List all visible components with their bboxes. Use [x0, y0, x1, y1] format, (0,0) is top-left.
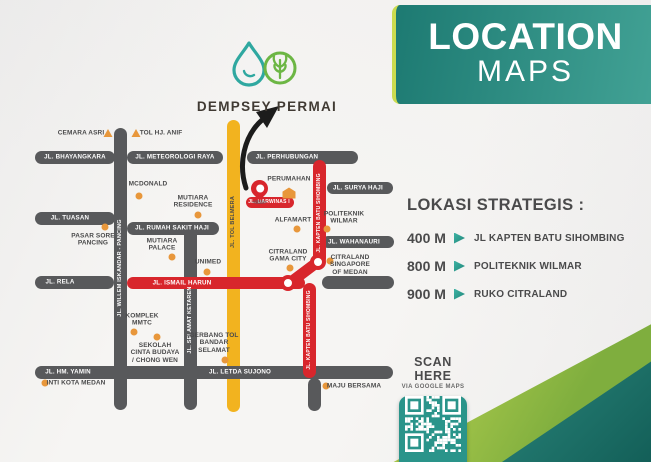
road-label: JL. METEOROLOGI RAYA	[135, 154, 214, 161]
house-icon	[283, 188, 296, 199]
poi-triangle-icon	[104, 129, 113, 137]
road-label: JL. KAPTEN BATU SIHOMBING	[306, 290, 312, 369]
scan-title: SCAN HERE	[399, 355, 467, 383]
place-label: RUKO CITRALAND	[474, 289, 567, 300]
place-label: JL KAPTEN BATU SIHOMBING	[474, 233, 625, 244]
header-title-line1: LOCATION	[396, 18, 651, 55]
scan-section: SCAN HERE VIA GOOGLE MAPS	[399, 355, 467, 462]
road-label: JL. ISMAIL HARUN	[153, 280, 212, 287]
road-label: JL. WILLEM ISKANDAR - PANCING	[117, 219, 123, 316]
road-label: JL. BHAYANGKARA	[44, 154, 106, 161]
place-label: POLITEKNIK WILMAR	[474, 261, 582, 272]
road-label: JL. RUMAH SAKIT HAJI	[135, 225, 209, 232]
poi-sekolah-cinta-budaya: SEKOLAHCINTA BUDAYA/ CHONG WEN	[131, 342, 180, 364]
poi-dot-icon	[154, 334, 161, 341]
poi-citraland-singapore-of-medan: CITRALANDSINGAPOREOF MEDAN	[330, 254, 370, 276]
strategic-row-900m: 900 M RUKO CITRALAND	[407, 286, 567, 302]
strategic-heading: LOKASI STRATEGIS :	[407, 196, 647, 215]
road-label: JL. PERHUBUNGAN	[256, 154, 318, 161]
poi-pasar-sore-pancing: PASAR SOREPANCING	[71, 233, 115, 248]
brand-logo: DEMPSEY PERMAI	[181, 40, 353, 114]
poi-cemara-asri: CEMARA ASRI	[58, 129, 104, 136]
strategic-row-400m: 400 M JL KAPTEN BATU SIHOMBING	[407, 230, 625, 246]
poi-gerbang-tol-bandar-selamat: GERBANG TOLBANDARSELAMAT	[189, 332, 238, 354]
roundabout-icon	[310, 254, 326, 270]
poi-citraland-gama-city: CITRALANDGAMA CITY	[269, 249, 308, 264]
road-label: JL. TOL BELMERA	[230, 196, 236, 248]
poi-dot-icon	[287, 265, 294, 272]
road-label: JL. LETDA SUJONO	[209, 369, 271, 376]
poi-alfamart: ALFAMART	[275, 216, 312, 223]
poi-unimed: UNIMED	[195, 258, 221, 265]
poi-maju-bersama: MAJU BERSAMA	[327, 382, 381, 389]
poi-mcdonald: MCDONALD	[129, 180, 168, 187]
distance-value: 800 M	[407, 258, 451, 274]
road-label: JL. RELA	[45, 279, 74, 286]
poi-dot-icon	[169, 254, 176, 261]
scan-subtitle: VIA GOOGLE MAPS	[399, 384, 467, 390]
poi-politeknik-wilmar: POLITEKNIKWILMAR	[324, 211, 364, 226]
poi-dot-icon	[131, 329, 138, 336]
header: LOCATION MAPS	[392, 5, 651, 104]
strategic-locations: LOKASI STRATEGIS : 400 M JL KAPTEN BATU …	[407, 196, 647, 215]
pin-shadow	[252, 200, 267, 204]
road-label: JL. HM. YAMIN	[45, 369, 91, 376]
road-label: JL. KAPTEN BATU SIHOMBING	[316, 173, 322, 252]
play-arrow-icon	[454, 289, 465, 300]
road-citraland-access	[322, 276, 394, 289]
brand-name: DEMPSEY PERMAI	[181, 99, 353, 114]
poi-dot-icon	[204, 269, 211, 276]
poi-dot-icon	[195, 212, 202, 219]
strategic-row-800m: 800 M POLITEKNIK WILMAR	[407, 258, 582, 274]
drop-tree-logo-icon	[223, 40, 311, 92]
road-label: JL. WAHANAURI	[328, 239, 380, 246]
poi-mutiara-residence: MUTIARARESIDENCE	[174, 195, 213, 210]
poi-komplek-mmtc: KOMPLEKMMTC	[125, 313, 158, 328]
qr-code	[399, 396, 467, 462]
play-arrow-icon	[454, 261, 465, 272]
distance-value: 400 M	[407, 230, 451, 246]
roundabout-icon	[280, 275, 296, 291]
qr-pattern	[405, 396, 461, 452]
poi-dot-icon	[102, 224, 109, 231]
play-arrow-icon	[454, 233, 465, 244]
header-title-line2: MAPS	[396, 55, 651, 88]
poi-dot-icon	[222, 357, 229, 364]
flyer: JL. BHAYANGKARAJL. METEOROLOGI RAYAJL. P…	[0, 0, 651, 462]
poi-mutiara-palace: MUTIARAPALACE	[147, 238, 178, 253]
road-label: JL. SURYA HAJI	[333, 185, 383, 192]
poi-inti-kota-medan: INTI KOTA MEDAN	[47, 379, 106, 386]
distance-value: 900 M	[407, 286, 451, 302]
poi-dot-icon	[294, 226, 301, 233]
poi-perumahan: PERUMAHAN	[267, 175, 310, 182]
poi-dot-icon	[324, 226, 331, 233]
poi-dot-icon	[136, 193, 143, 200]
road-label: JL. TUASAN	[51, 215, 89, 222]
road-letda-stub	[308, 378, 321, 411]
poi-tol-hj-anif: TOL HJ. ANIF	[140, 129, 183, 136]
